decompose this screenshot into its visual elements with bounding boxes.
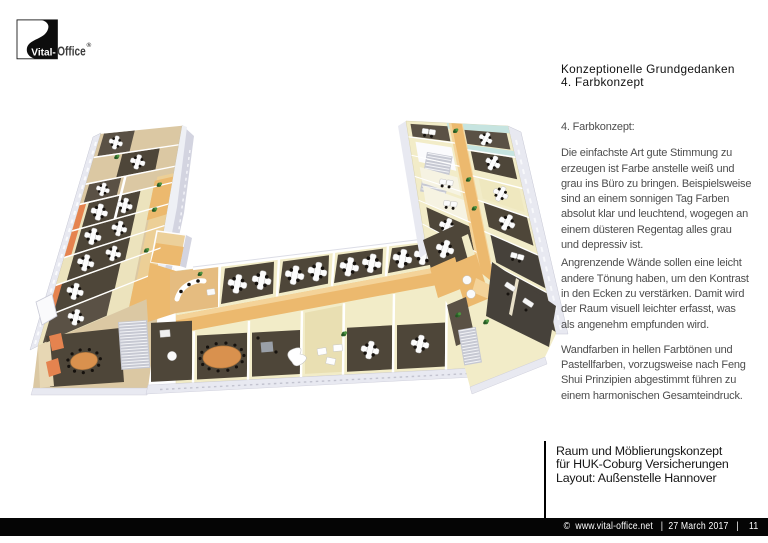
svg-text:Office: Office (57, 43, 85, 58)
svg-text:®: ® (87, 41, 92, 49)
svg-text:Vital-: Vital- (31, 47, 56, 58)
